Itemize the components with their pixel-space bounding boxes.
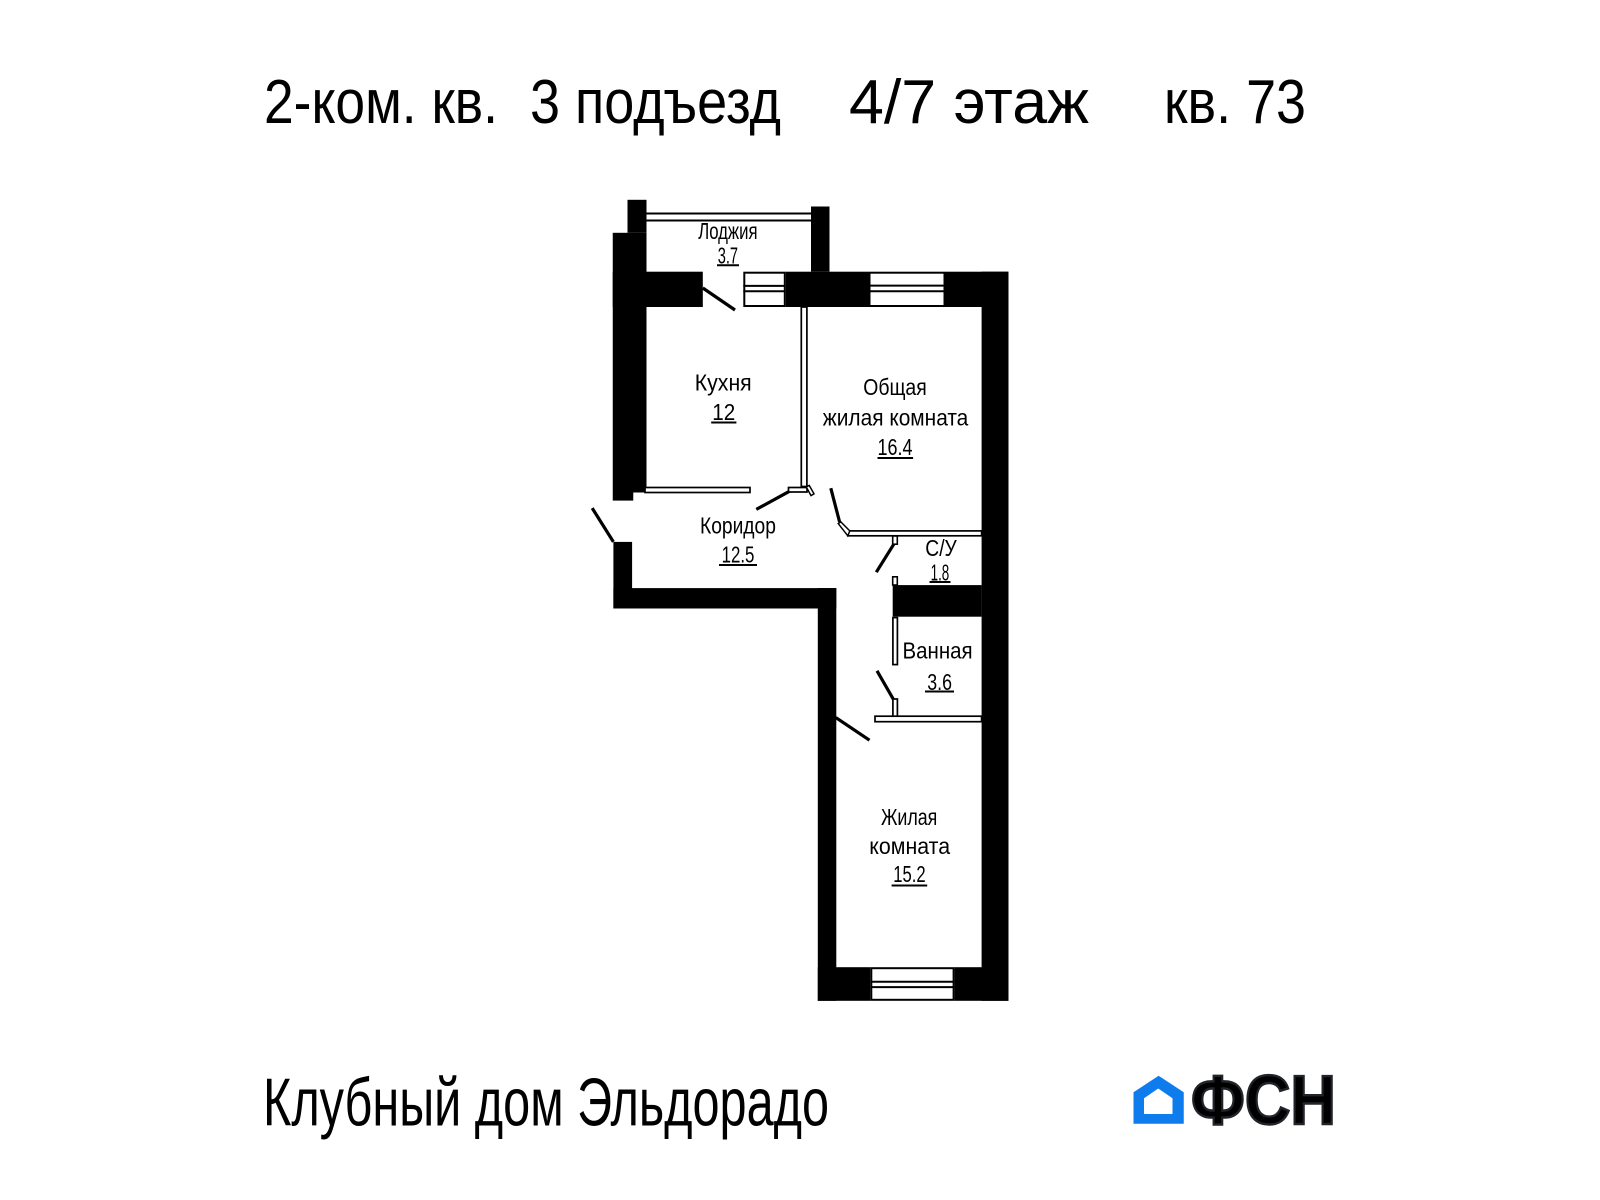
svg-text:жилая комната: жилая комната: [823, 405, 969, 431]
svg-text:Коридор: Коридор: [700, 512, 776, 538]
svg-text:15.2: 15.2: [893, 861, 925, 887]
svg-text:Кухня: Кухня: [695, 370, 752, 396]
svg-text:2-ком. кв.: 2-ком. кв.: [264, 68, 498, 137]
svg-text:Ванная: Ванная: [903, 638, 973, 664]
svg-text:кв. 73: кв. 73: [1164, 68, 1306, 137]
svg-text:Жилая: Жилая: [881, 804, 937, 830]
svg-text:комната: комната: [869, 833, 950, 859]
svg-text:Клубный дом Эльдорадо: Клубный дом Эльдорадо: [263, 1065, 829, 1141]
svg-text:4/7 этаж: 4/7 этаж: [849, 68, 1090, 137]
svg-text:12.5: 12.5: [722, 542, 755, 568]
svg-text:Общая: Общая: [863, 374, 926, 400]
svg-text:Лоджия: Лоджия: [698, 218, 757, 244]
svg-text:ФСН: ФСН: [1191, 1061, 1336, 1139]
svg-text:3 подъезд: 3 подъезд: [530, 68, 781, 137]
svg-text:16.4: 16.4: [878, 434, 913, 460]
svg-text:С/У: С/У: [925, 535, 957, 561]
svg-text:12: 12: [712, 399, 735, 425]
